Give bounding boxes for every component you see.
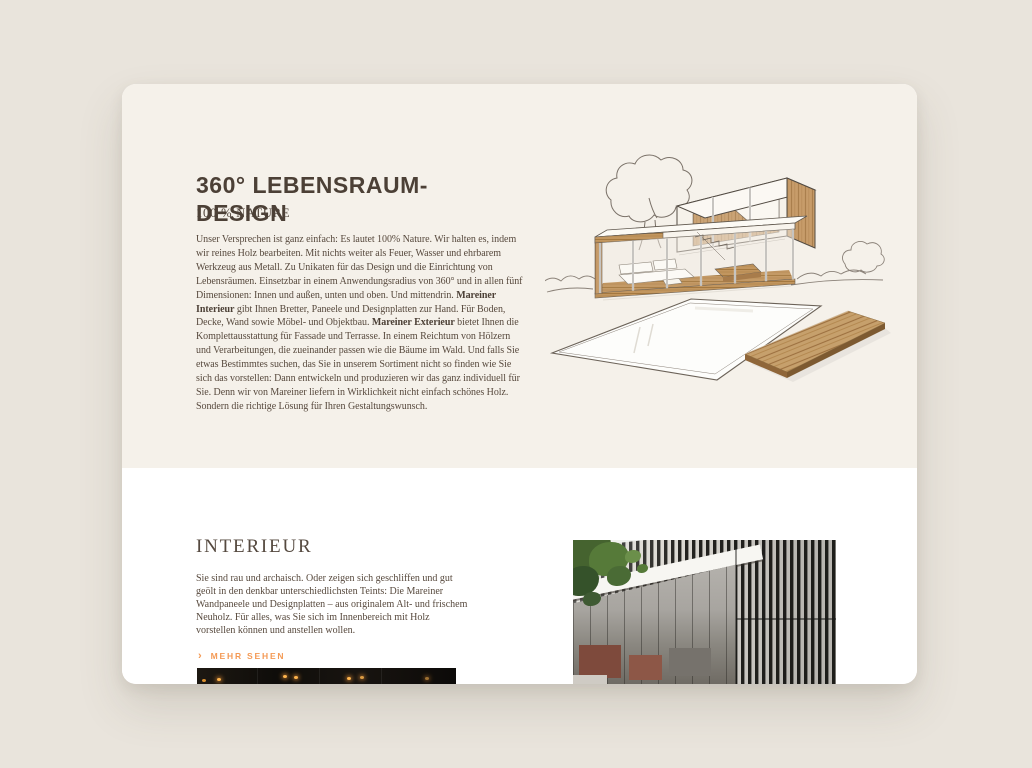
house-sketch-illustration [545,142,917,397]
house-lower-floor [595,216,807,300]
hero-paragraph-text: bietet Ihnen die Komplettausstattung für… [196,317,520,411]
facade-slats-photo [573,540,836,684]
content-card: 360° LEBENSRAUM-DESIGN 100 % NATURE Unse… [122,84,917,684]
chevron-right-icon: › [198,652,202,660]
mehr-sehen-link[interactable]: › MEHR SEHEN [198,651,285,661]
hero-section: 360° LEBENSRAUM-DESIGN 100 % NATURE Unse… [122,84,917,468]
hero-paragraph: Unser Versprechen ist ganz einfach: Es l… [196,233,526,414]
hero-subtitle: 100 % NATURE [196,206,290,221]
interieur-night-photo [197,668,456,684]
page-background: { "page": { "background": "#e9e4dc" }, "… [0,0,1032,768]
interieur-heading: INTERIEUR [196,536,312,558]
interieur-paragraph: Sie sind rau und archaisch. Oder zeigen … [196,573,468,638]
hero-title-line1: 360° LEBENSRAUM- [196,172,428,198]
hero-paragraph-bold-exterieur: Mareiner Exterieur [372,317,455,328]
mehr-sehen-label: MEHR SEHEN [211,651,286,661]
bush-sketch [843,242,885,273]
